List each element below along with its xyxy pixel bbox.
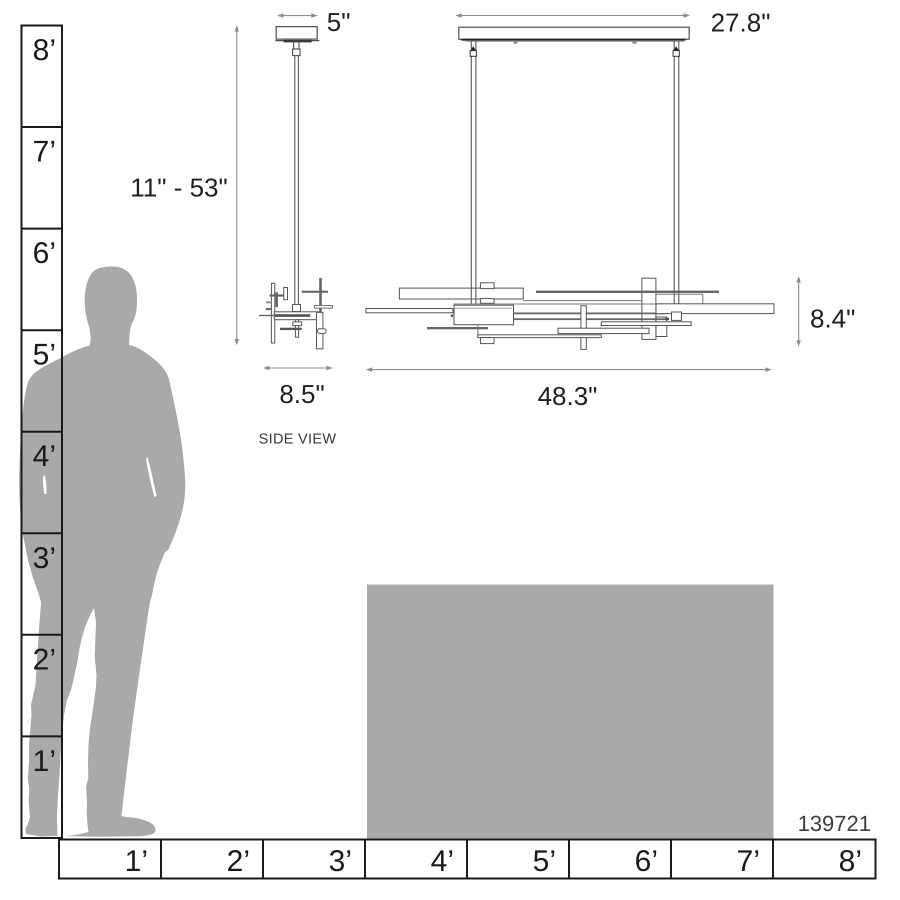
svg-text:SIDE VIEW: SIDE VIEW [259, 432, 337, 448]
svg-text:3’: 3’ [329, 845, 352, 878]
svg-text:139721: 139721 [798, 811, 871, 836]
svg-text:1’: 1’ [33, 745, 56, 778]
svg-text:7’: 7’ [737, 845, 760, 878]
svg-text:6’: 6’ [635, 845, 658, 878]
svg-text:5’: 5’ [533, 845, 556, 878]
svg-text:8’: 8’ [839, 845, 862, 878]
svg-text:27.8": 27.8" [711, 8, 771, 38]
svg-text:4’: 4’ [431, 845, 454, 878]
svg-text:7’: 7’ [33, 136, 56, 169]
svg-text:48.3": 48.3" [538, 381, 598, 411]
svg-text:2’: 2’ [33, 643, 56, 676]
svg-text:3’: 3’ [33, 542, 56, 575]
svg-text:8’: 8’ [33, 34, 56, 67]
svg-text:8.4": 8.4" [810, 303, 855, 333]
svg-text:5": 5" [327, 7, 351, 37]
svg-text:6’: 6’ [33, 237, 56, 270]
svg-text:11" - 53": 11" - 53" [130, 173, 227, 203]
svg-text:1’: 1’ [125, 845, 148, 878]
svg-text:2’: 2’ [227, 845, 250, 878]
svg-text:5’: 5’ [33, 339, 56, 372]
svg-text:8.5": 8.5" [279, 379, 324, 409]
svg-text:4’: 4’ [33, 440, 56, 473]
